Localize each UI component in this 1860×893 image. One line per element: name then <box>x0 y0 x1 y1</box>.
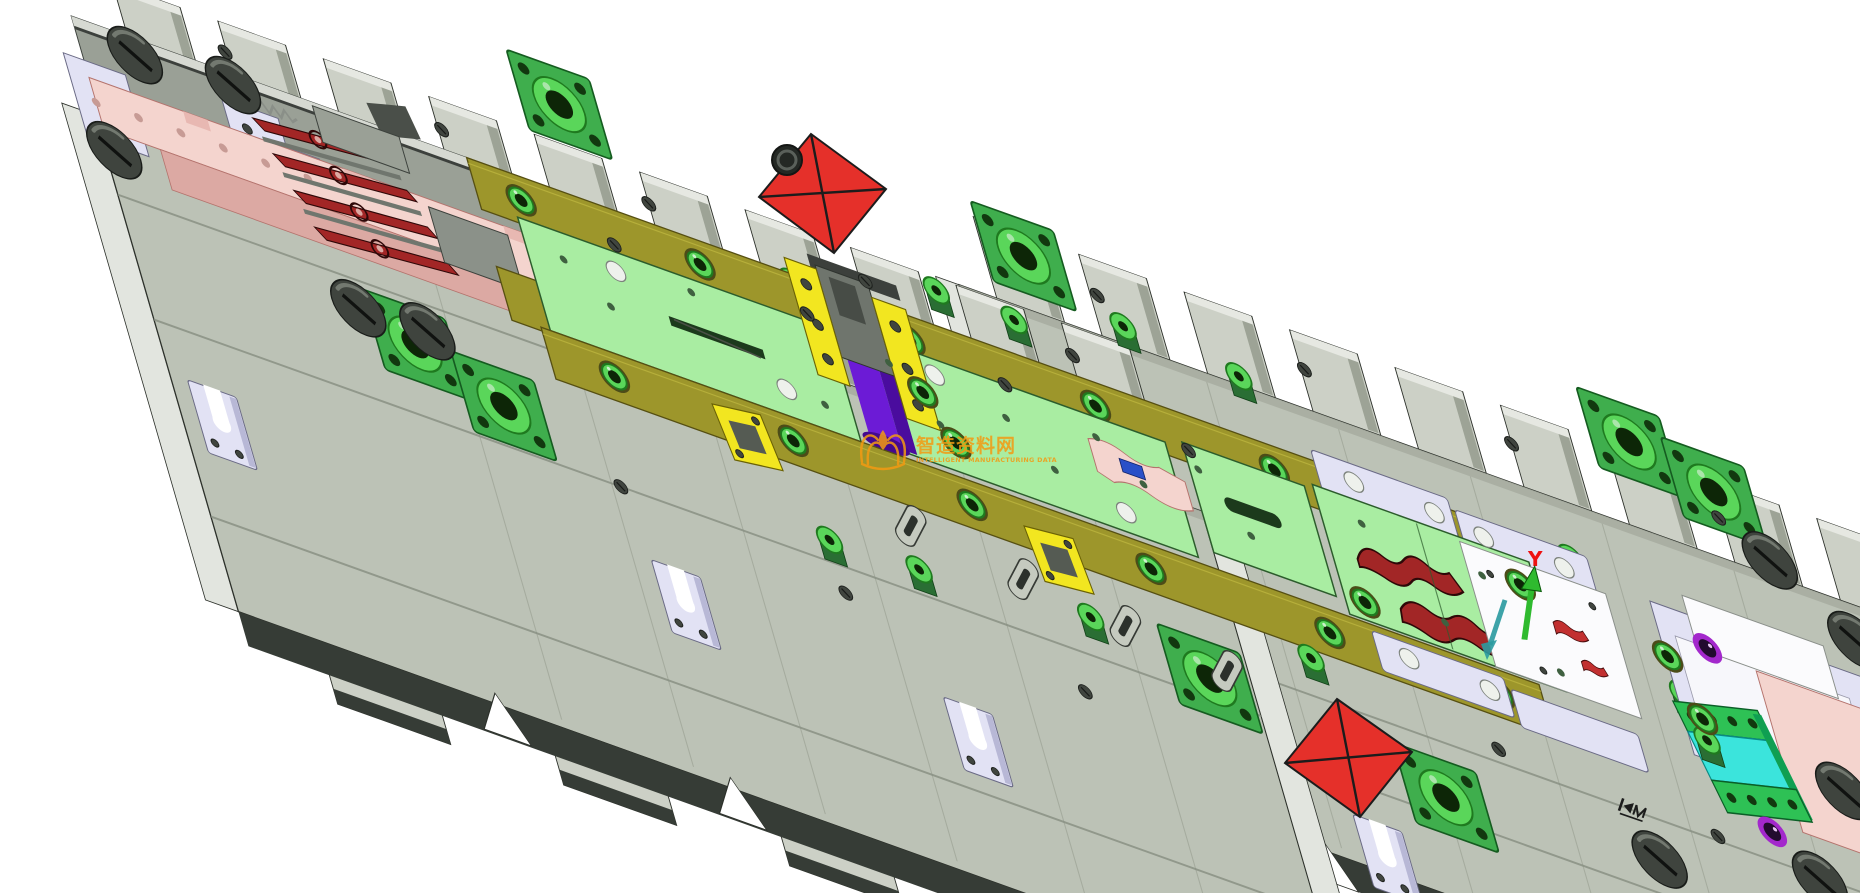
watermark-title: 智造资料网 <box>916 434 1016 457</box>
cad-viewport: 智造资料网 INTELLIGENT MANUFACTURING DATA Y <box>0 0 1860 893</box>
grommet-washer <box>772 145 802 175</box>
watermark-subtitle: INTELLIGENT MANUFACTURING DATA <box>916 456 1057 464</box>
die-assembly-isometric-view: 智造资料网 INTELLIGENT MANUFACTURING DATA Y <box>0 0 1860 893</box>
